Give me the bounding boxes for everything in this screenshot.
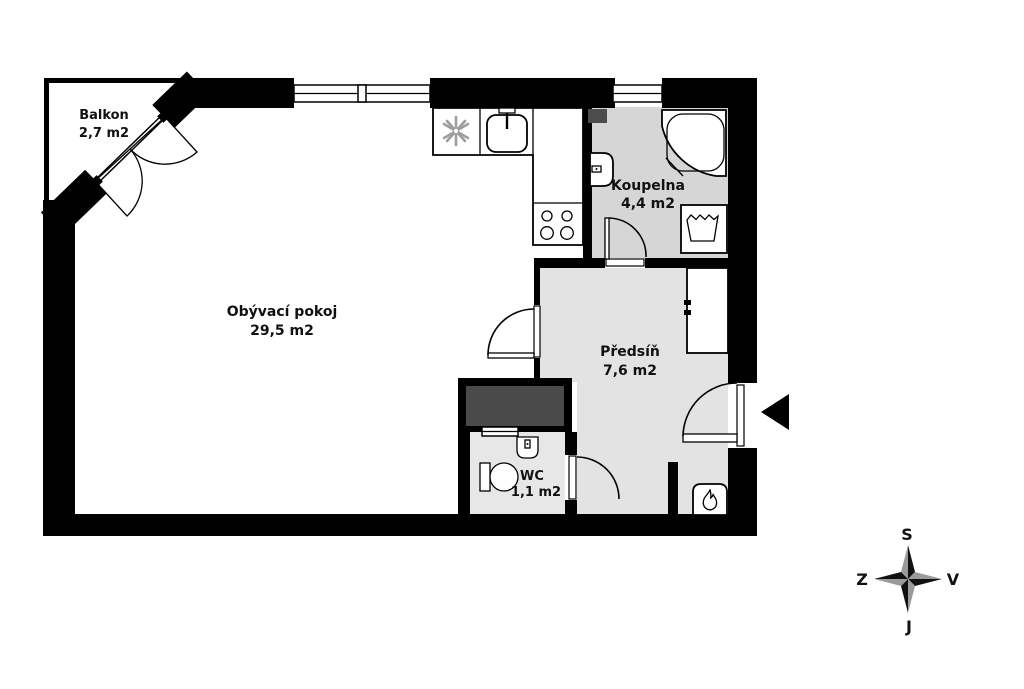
- balcony-label: Balkon: [79, 108, 129, 123]
- gas-boiler-icon: [693, 484, 727, 515]
- wc-label: WC: [520, 469, 544, 484]
- living-room-window: [294, 85, 430, 102]
- compass-west-label: Z: [856, 570, 868, 589]
- living-room-label: Obývací pokoj: [227, 304, 338, 320]
- wc-vent-window: [482, 427, 518, 436]
- bathroom-hallway-wall-left: [534, 258, 605, 268]
- vent-duct: [588, 109, 607, 123]
- compass-rose: S J V Z: [856, 525, 960, 636]
- hallway-area: 7,6 m2: [603, 363, 657, 379]
- kitchen-sink-icon: [487, 108, 527, 152]
- wardrobe: [684, 268, 728, 353]
- balcony-parapet-top: [44, 78, 191, 83]
- boiler-nook-wall: [668, 462, 678, 515]
- compass-south-label: J: [905, 617, 912, 636]
- living-room-area: 29,5 m2: [250, 323, 314, 339]
- washbasin-icon: [590, 153, 613, 186]
- wc-right-wall-lower: [565, 500, 577, 514]
- living-room-door: [488, 306, 540, 358]
- bathroom-window: [613, 85, 662, 102]
- floor-plan: Balkon 2,7 m2 Obývací pokoj 29,5 m2 Koup…: [0, 0, 1024, 689]
- left-wall: [43, 200, 75, 536]
- bathroom-label: Koupelna: [611, 178, 685, 194]
- kitchen-bathroom-wall: [583, 108, 592, 268]
- livingroom-hallway-partition-lower: [534, 358, 540, 383]
- washing-machine-icon: [681, 205, 727, 253]
- wc-sink-icon: [517, 437, 538, 458]
- compass-east-label: V: [947, 570, 960, 589]
- right-wall-upper: [728, 78, 757, 383]
- compass-north-label: S: [901, 525, 913, 544]
- bathroom-hallway-wall-right: [645, 258, 757, 268]
- wc-area: 1,1 m2: [511, 485, 561, 500]
- entrance-arrow-icon: [761, 394, 789, 430]
- top-wall-middle: [430, 78, 615, 108]
- bathroom-area: 4,4 m2: [621, 196, 675, 212]
- balcony-parapet-left: [44, 78, 49, 205]
- livingroom-hallway-partition-upper: [534, 258, 540, 305]
- corner-shower-icon: [662, 110, 726, 176]
- wc-left-wall: [458, 432, 470, 514]
- kitchen-counter: [433, 108, 583, 245]
- balcony-area: 2,7 m2: [79, 126, 129, 141]
- hallway-label: Předsíň: [600, 344, 660, 360]
- bottom-wall: [43, 514, 757, 536]
- wc-right-wall-upper: [565, 432, 577, 455]
- installation-shaft: [458, 378, 572, 432]
